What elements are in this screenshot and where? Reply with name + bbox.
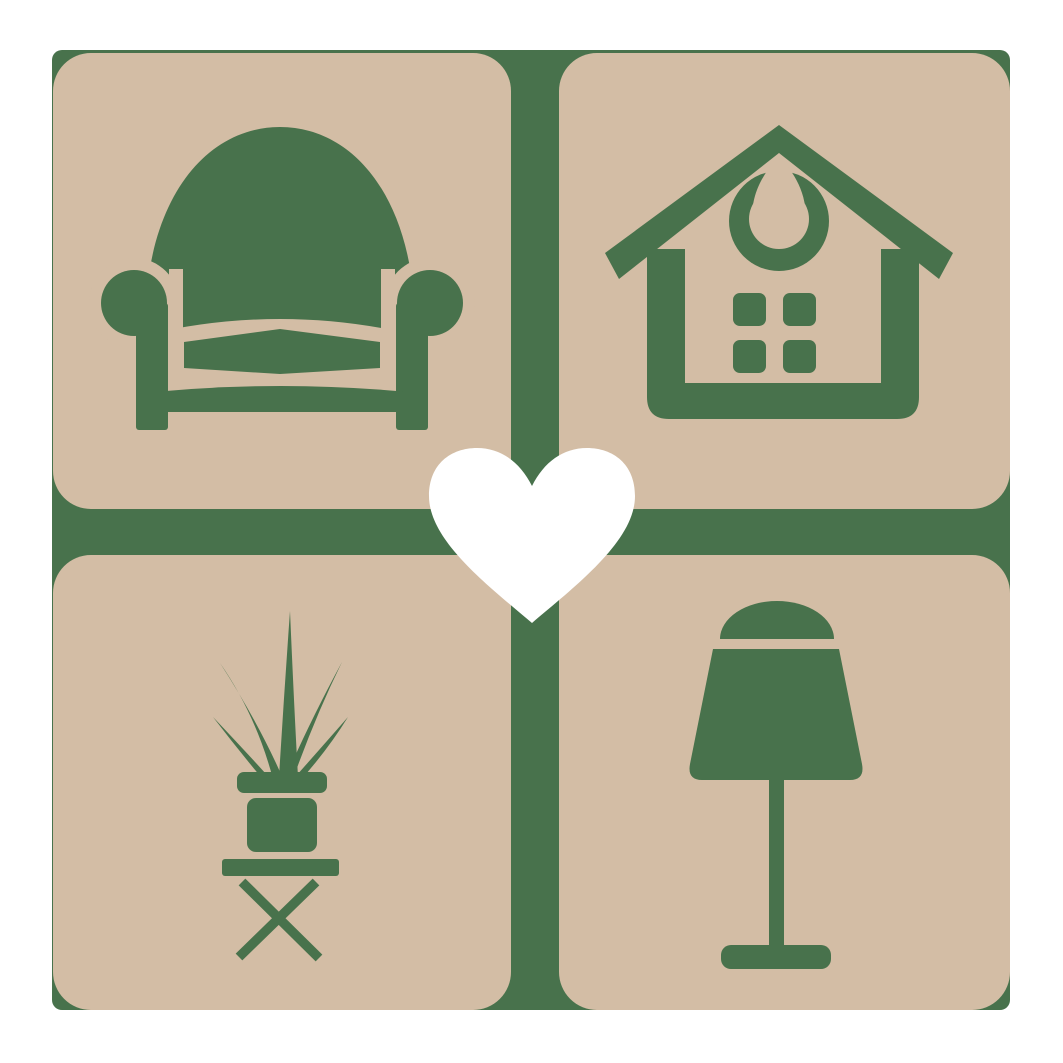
- armchair-icon: [53, 53, 511, 509]
- logo-canvas: [0, 0, 1063, 1063]
- tile-top-left: [53, 53, 511, 509]
- house-icon: [559, 53, 1010, 509]
- tile-bottom-left: [53, 555, 511, 1010]
- heart-icon: [423, 446, 641, 623]
- table-lamp-icon: [559, 555, 1010, 1010]
- tile-bottom-right: [559, 555, 1010, 1010]
- potted-plant-icon: [53, 555, 511, 1010]
- tile-top-right: [559, 53, 1010, 509]
